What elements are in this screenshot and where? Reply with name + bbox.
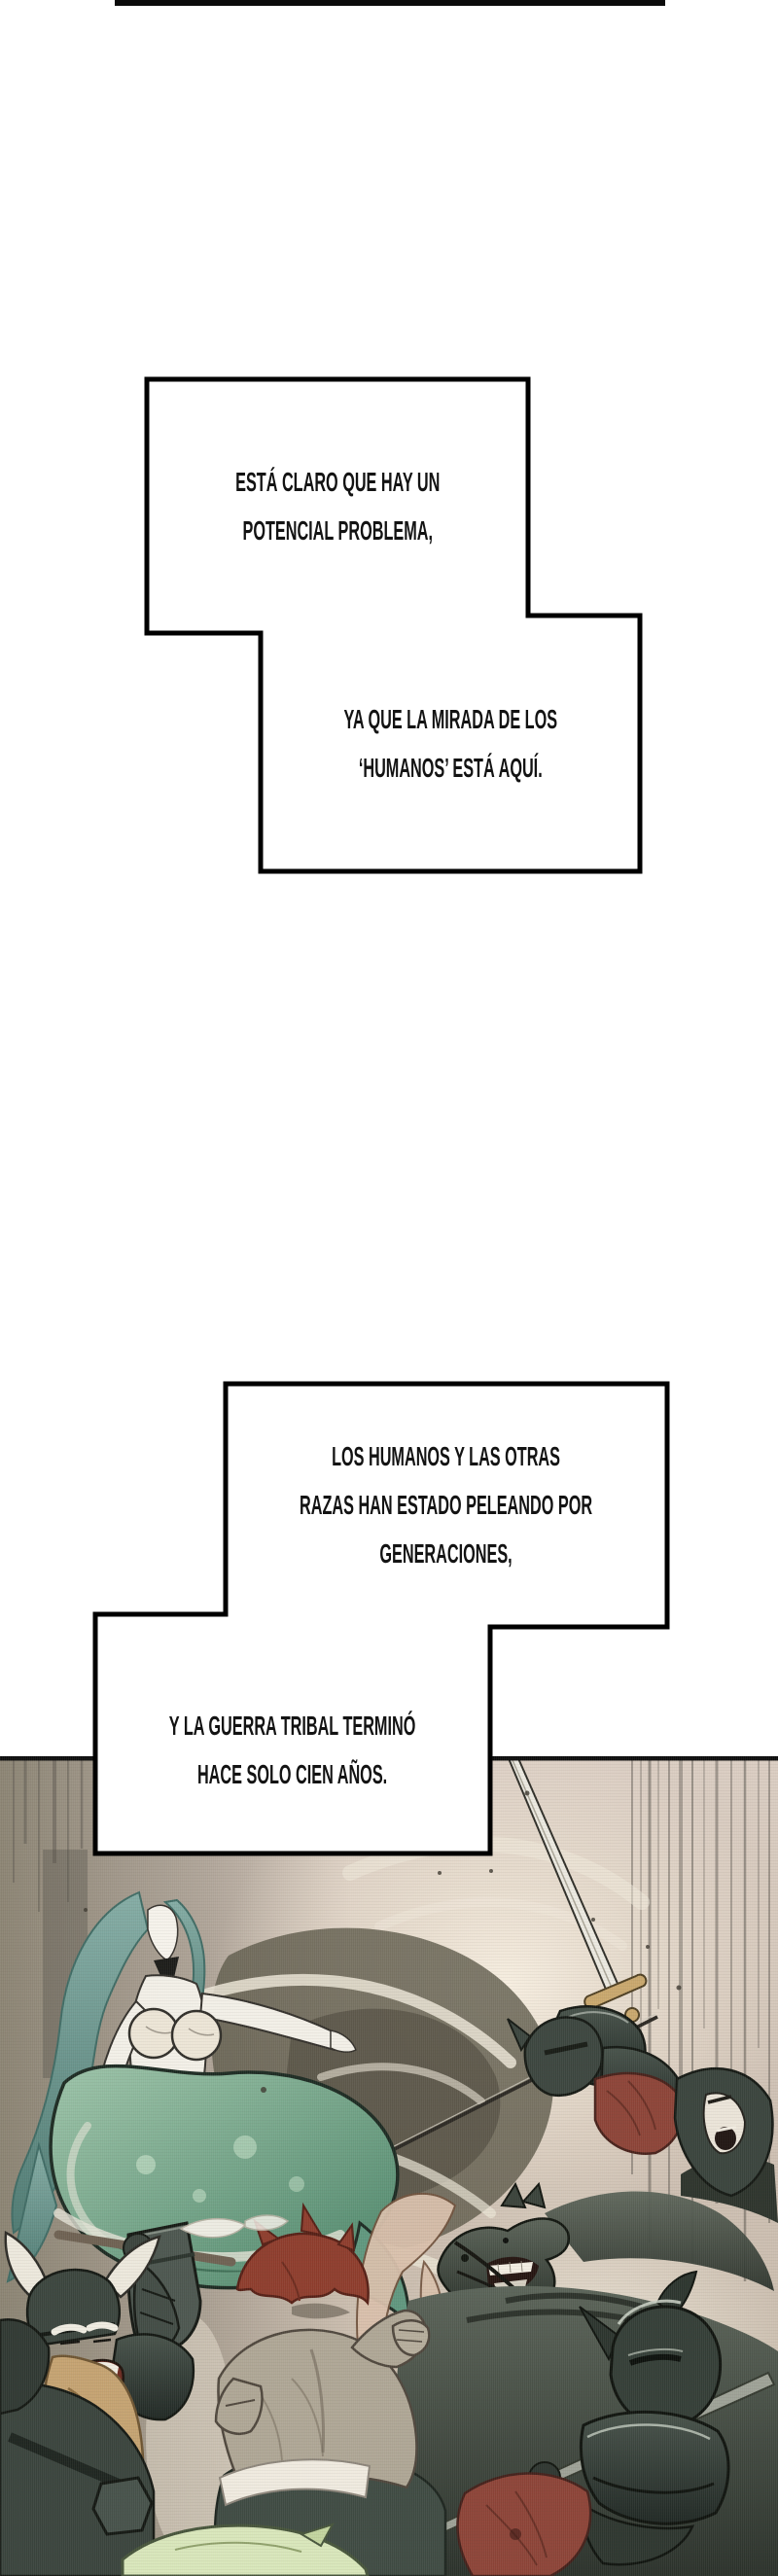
speech-line: POTENCIAL PROBLEMA, xyxy=(235,507,440,555)
speech-bubble-2-text: YA QUE LA MIRADA DE LOS ‘HUMANOS’ ESTÁ A… xyxy=(259,614,642,873)
speech-line: ESTÁ CLARO QUE HAY UN xyxy=(235,458,440,507)
battle-illustration xyxy=(0,1756,778,2576)
speech-bubble-3-text: LOS HUMANOS Y LAS OTRAS RAZAS HAN ESTADO… xyxy=(224,1382,669,1629)
speech-line: HACE SOLO CIEN AÑOS. xyxy=(169,1750,416,1799)
speech-line: YA QUE LA MIRADA DE LOS xyxy=(343,695,557,744)
red-cape xyxy=(457,2473,590,2576)
speech-line: Y LA GUERRA TRIBAL TERMINÓ xyxy=(169,1702,416,1750)
previous-panel-edge xyxy=(115,0,665,6)
speech-bubble-4-text: Y LA GUERRA TRIBAL TERMINÓ HACE SOLO CIE… xyxy=(93,1612,492,1855)
speech-line: GENERACIONES, xyxy=(300,1530,592,1578)
webtoon-page: ESTÁ CLARO QUE HAY UN POTENCIAL PROBLEMA… xyxy=(0,0,778,2576)
speech-line: ‘HUMANOS’ ESTÁ AQUÍ. xyxy=(343,744,557,793)
speech-line: RAZAS HAN ESTADO PELEANDO POR xyxy=(300,1481,592,1530)
speech-line: LOS HUMANOS Y LAS OTRAS xyxy=(300,1432,592,1481)
speech-bubble-1-text: ESTÁ CLARO QUE HAY UN POTENCIAL PROBLEMA… xyxy=(145,377,530,635)
